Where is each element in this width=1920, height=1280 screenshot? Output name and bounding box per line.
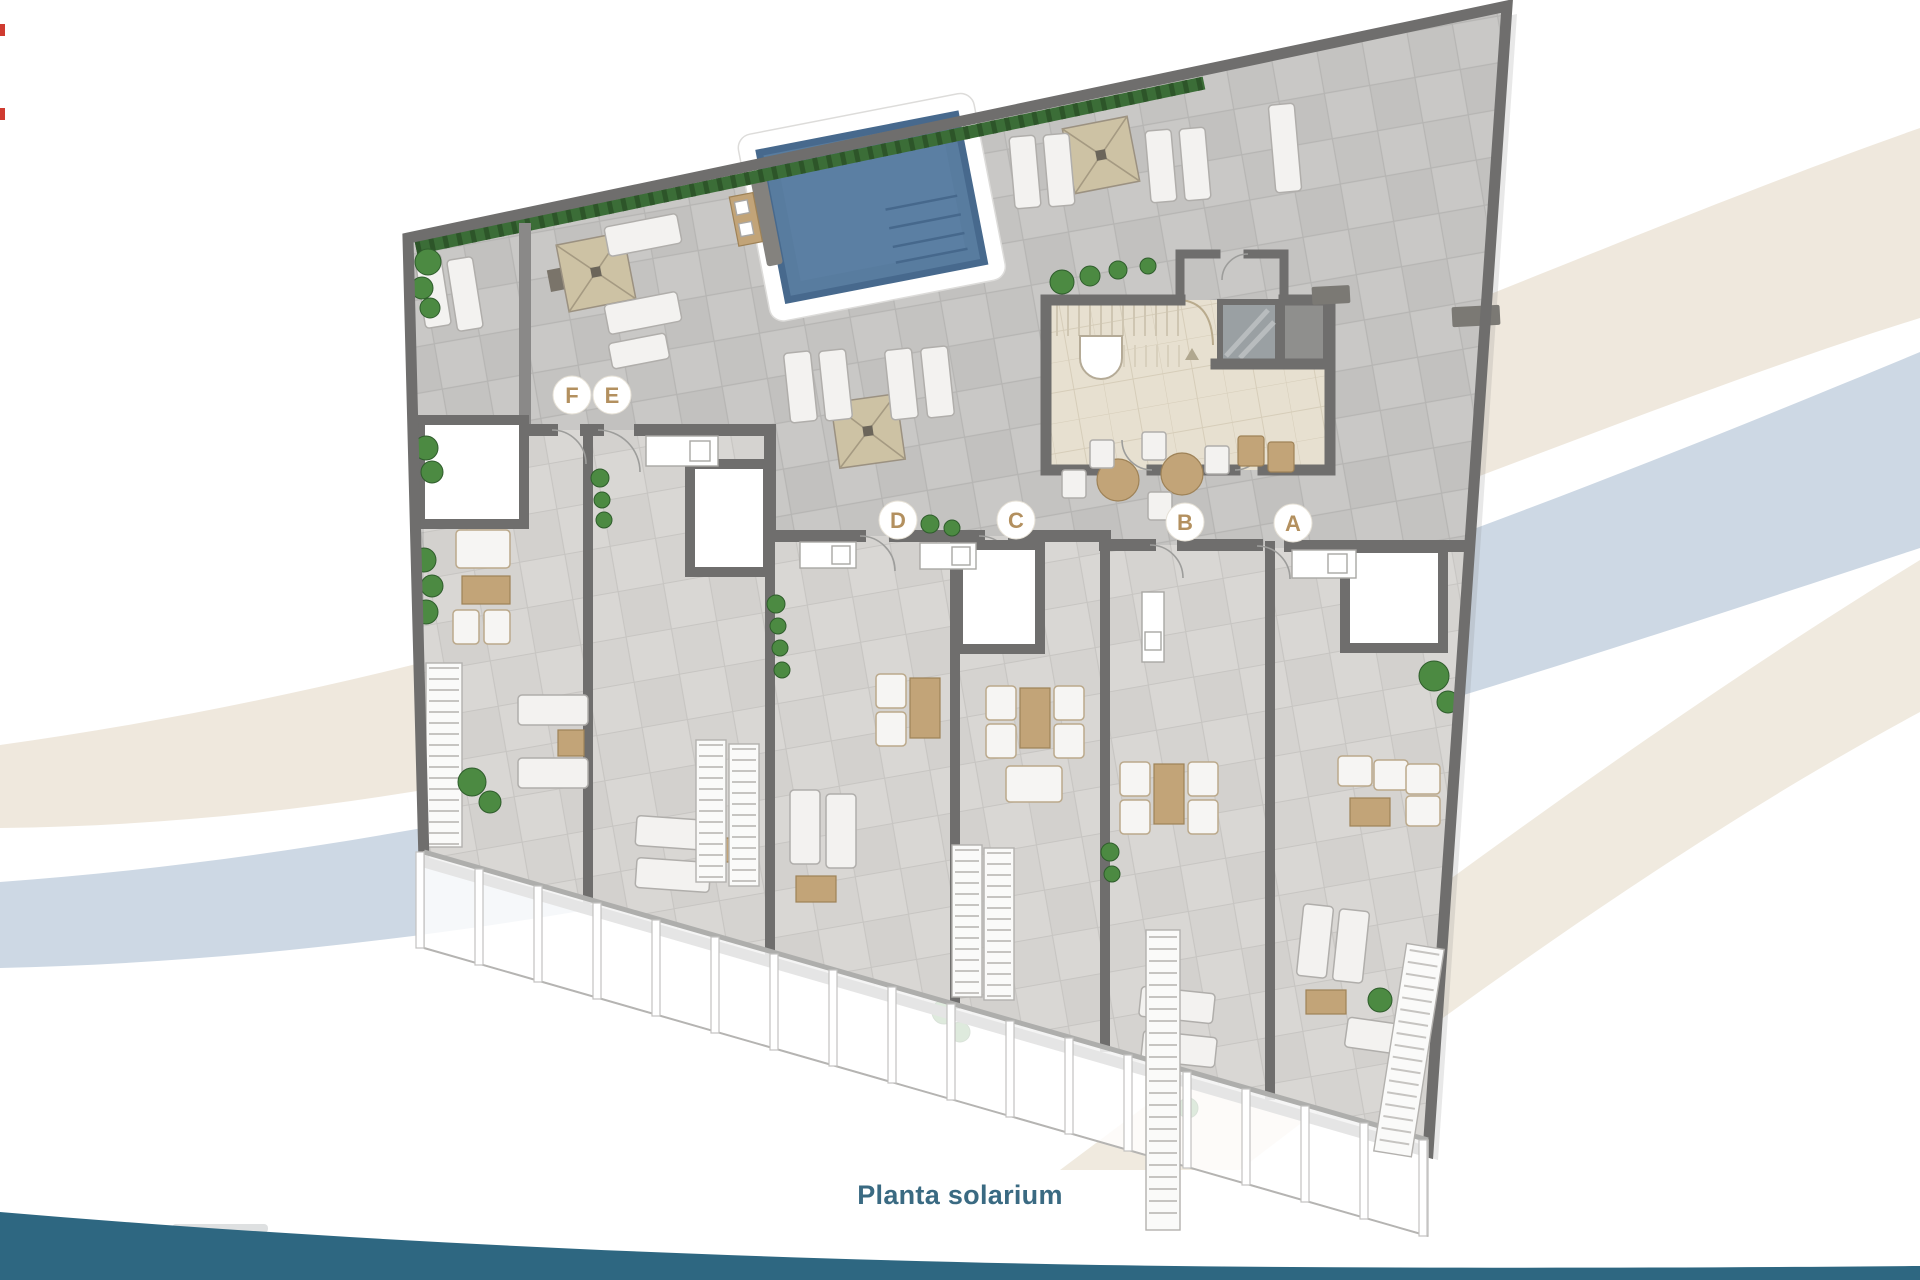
edge-marks bbox=[0, 24, 5, 120]
floor-plan: F E D C B A bbox=[408, 6, 1507, 1236]
unit-label-e[interactable]: E bbox=[593, 376, 631, 414]
floor-plan-page: F E D C B A Planta bbox=[0, 0, 1920, 1280]
svg-text:F[interactable]: F bbox=[565, 383, 578, 408]
unit-label-b[interactable]: B bbox=[1166, 503, 1204, 541]
partition-wall bbox=[519, 223, 531, 425]
svg-text:C[interactable]: C bbox=[1008, 508, 1024, 533]
planter-basin bbox=[1080, 336, 1122, 379]
bottom-wave bbox=[0, 1212, 1920, 1280]
svg-text:A[interactable]: A bbox=[1285, 511, 1301, 536]
unit-label-f[interactable]: F bbox=[553, 376, 591, 414]
svg-text:B[interactable]: B bbox=[1177, 510, 1193, 535]
unit-label-c[interactable]: C bbox=[997, 501, 1035, 539]
unit-label-d[interactable]: D bbox=[879, 501, 917, 539]
unit-label-a[interactable]: A bbox=[1274, 504, 1312, 542]
svg-text:E[interactable]: E bbox=[605, 383, 620, 408]
floor-plan-image: F E D C B A bbox=[0, 0, 1920, 1280]
elevator bbox=[1220, 302, 1326, 362]
svg-text:D[interactable]: D bbox=[890, 508, 906, 533]
plan-caption: Planta solarium bbox=[857, 1180, 1063, 1211]
pergola-north bbox=[1062, 116, 1139, 193]
